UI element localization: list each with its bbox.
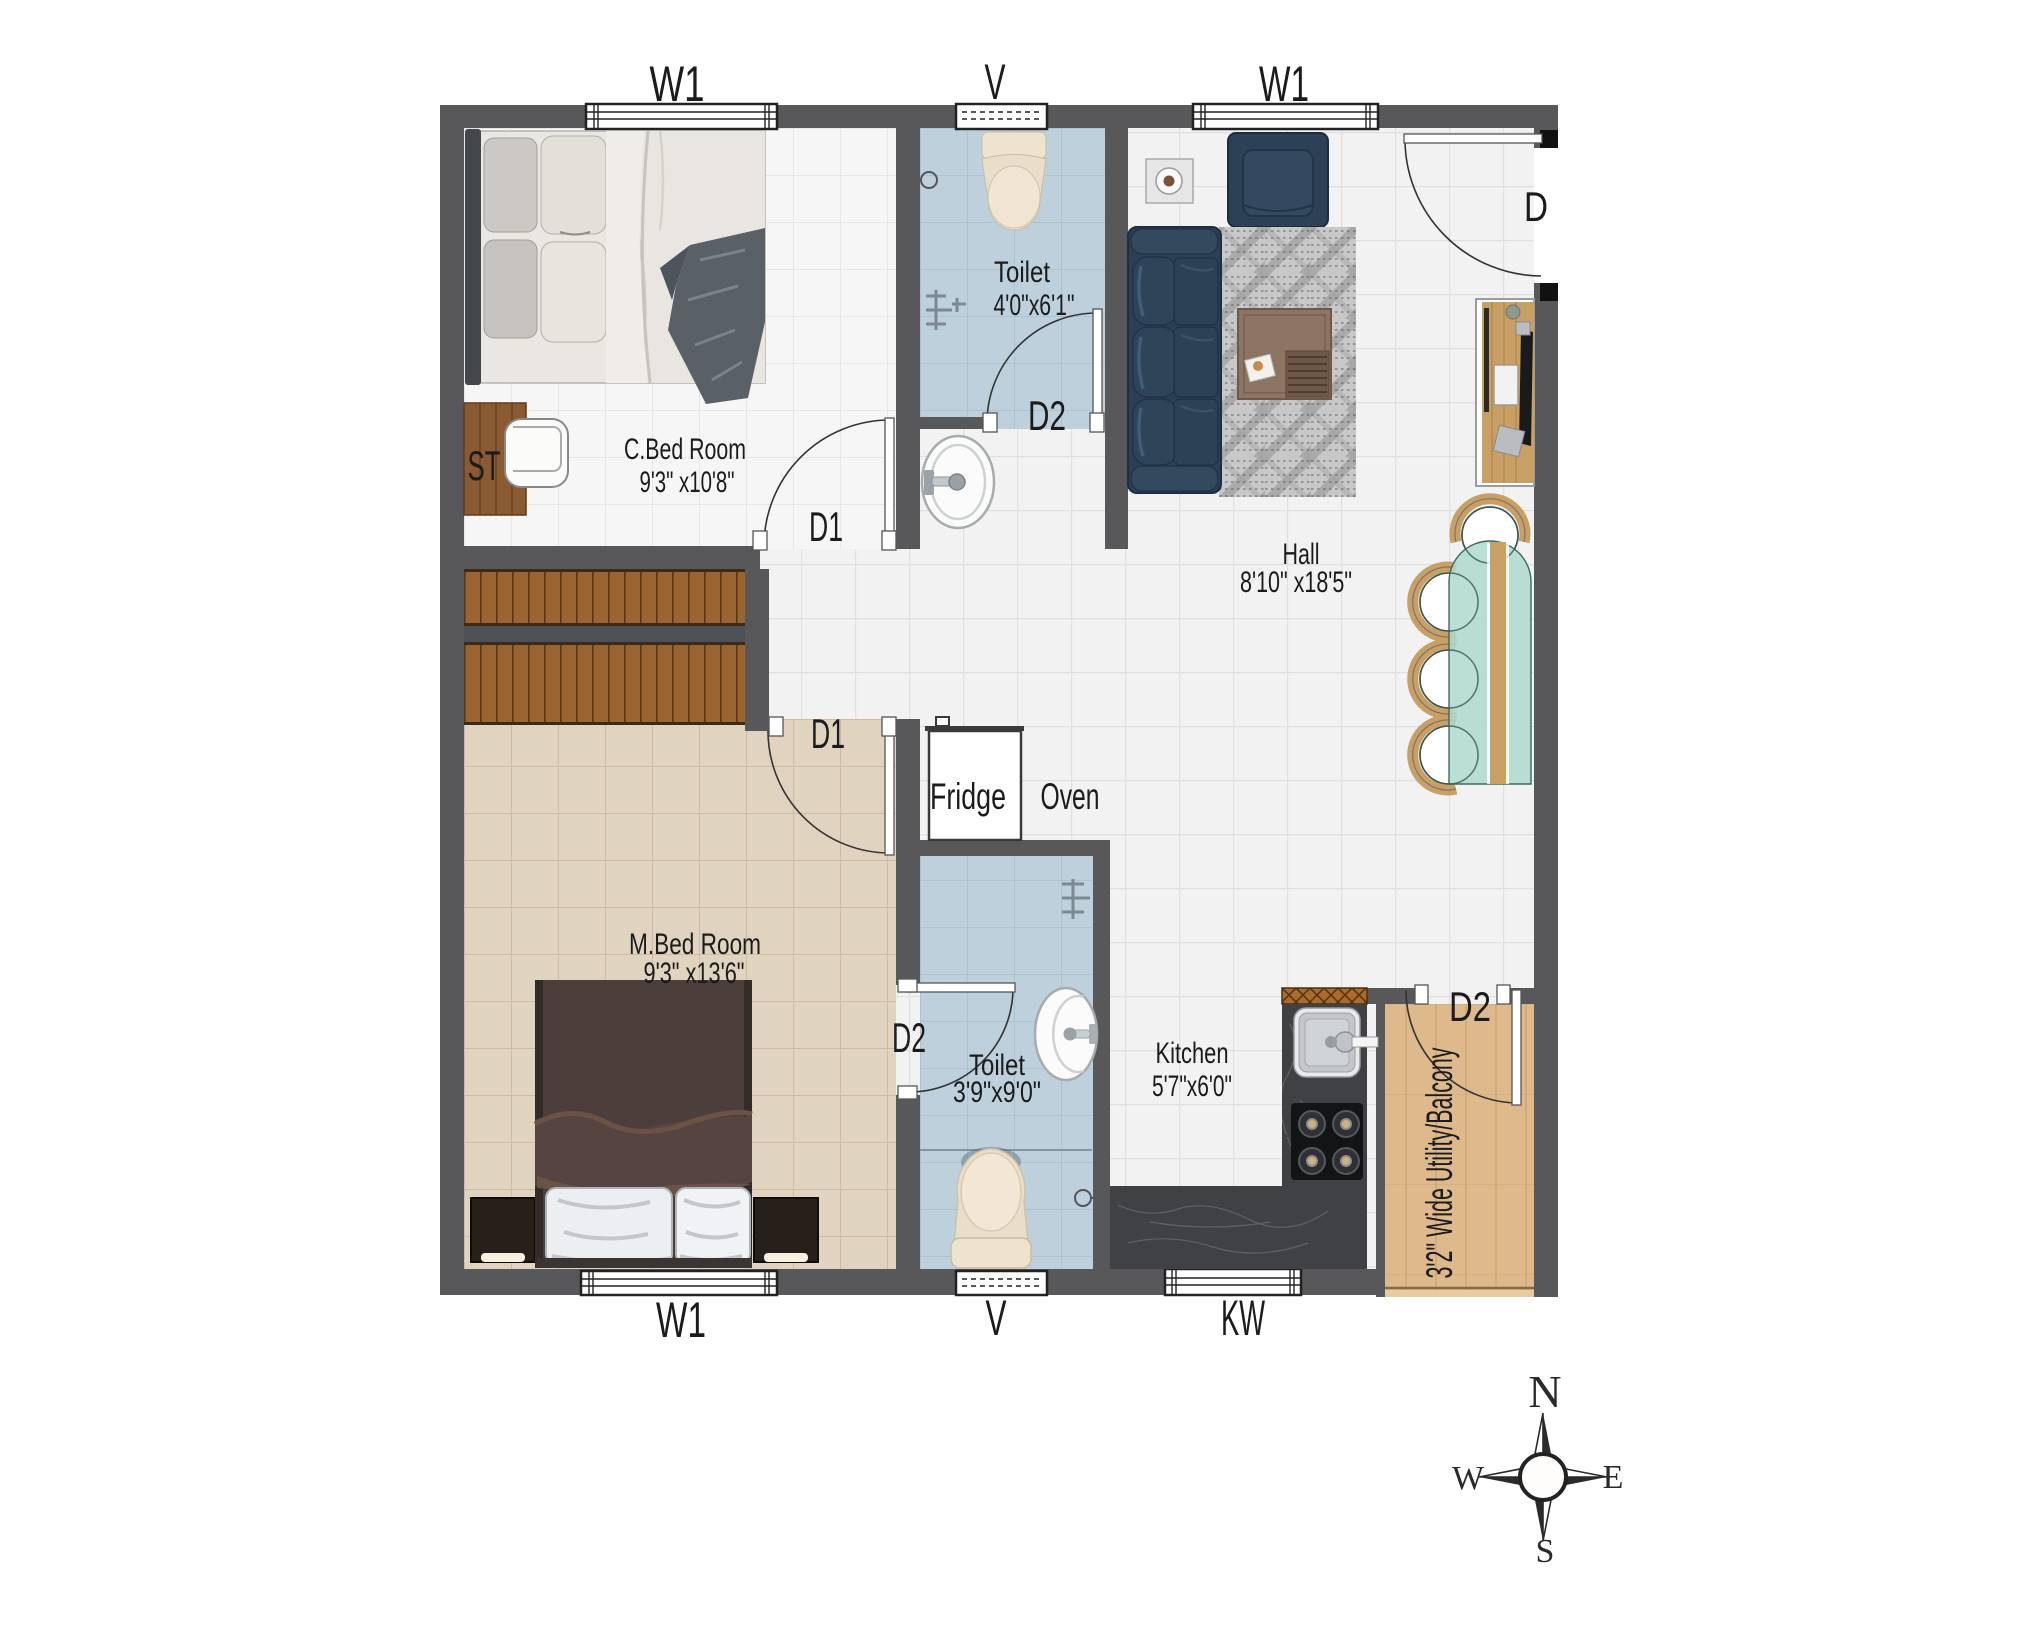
svg-text:D: D [1524,183,1548,230]
svg-text:Oven: Oven [1041,776,1100,817]
svg-text:W: W [1452,1460,1485,1497]
svg-text:V: V [985,54,1006,110]
svg-text:Toilet: Toilet [994,256,1051,289]
svg-text:3'2" Wide Utility/Balcony: 3'2" Wide Utility/Balcony [1419,1047,1460,1278]
svg-text:S: S [1536,1533,1555,1570]
svg-text:Fridge: Fridge [930,776,1006,817]
svg-text:8'10" x18'5": 8'10" x18'5" [1240,566,1352,599]
svg-text:D1: D1 [811,710,845,757]
svg-text:E: E [1603,1459,1624,1496]
svg-text:C.Bed Room: C.Bed Room [624,433,746,466]
svg-text:4'0"x6'1": 4'0"x6'1" [994,289,1075,322]
svg-text:KW: KW [1221,1290,1265,1346]
svg-text:Kitchen: Kitchen [1156,1037,1229,1070]
svg-text:D2: D2 [892,1014,926,1061]
svg-text:W1: W1 [650,56,705,112]
svg-text:9'3" x10'8": 9'3" x10'8" [640,466,735,499]
svg-text:D2: D2 [1449,983,1491,1030]
svg-text:3'9"x9'0": 3'9"x9'0" [953,1076,1041,1109]
svg-text:V: V [986,1290,1007,1346]
svg-text:W1: W1 [656,1292,706,1348]
svg-text:N: N [1528,1366,1561,1417]
svg-text:9'3" x13'6": 9'3" x13'6" [644,957,745,990]
svg-text:ST: ST [468,442,501,489]
svg-text:W1: W1 [1259,56,1309,112]
svg-text:D1: D1 [809,503,843,550]
svg-text:5'7"x6'0": 5'7"x6'0" [1152,1070,1232,1103]
svg-text:D2: D2 [1028,392,1066,439]
